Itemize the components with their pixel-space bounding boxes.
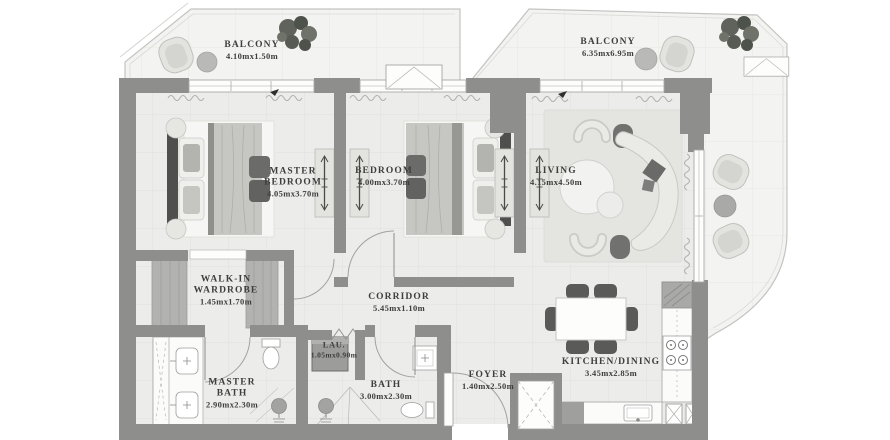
living-ottoman [610,235,630,259]
sofa-pillow [642,179,655,192]
sink-icon [413,346,437,370]
floor-plan-drawing [0,0,890,440]
balcony-table [714,195,736,217]
toilet-icon [401,402,434,418]
wardrobe-opening [190,250,246,259]
entry-door-leaf [444,373,453,426]
window [540,80,664,92]
kitchen-sink-icon [624,405,652,422]
balcony-table [197,52,217,72]
floor-plan: BALCONY 4.10mx1.50m BALCONY 6.35mx6.95m … [0,0,890,440]
toilet-icon [262,339,280,369]
ac-unit-icon [386,65,442,89]
balcony-table [635,48,657,70]
elevator-icon [518,381,554,429]
washing-machine-icon [312,337,348,371]
ac-unit-icon [744,57,789,76]
window [694,150,704,282]
cooktop-icon [663,336,691,370]
coffee-table [597,192,623,218]
window [189,80,314,92]
